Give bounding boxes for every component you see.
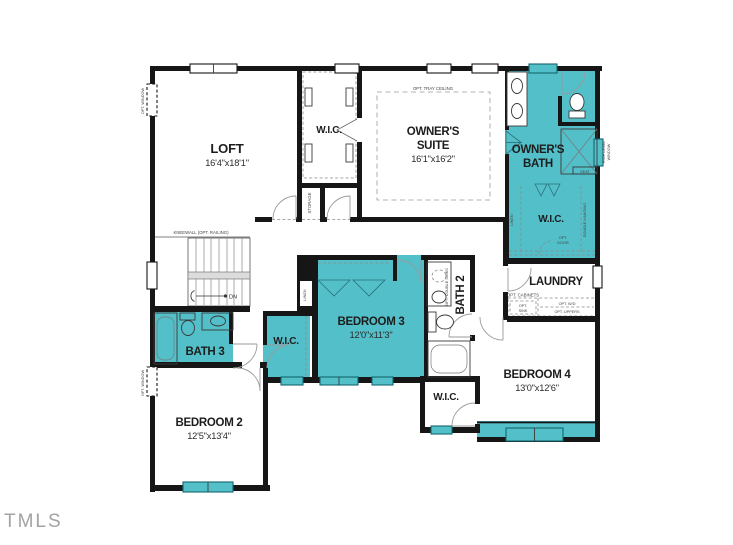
wall-bath2-right (470, 255, 475, 312)
seat-label: SEAT (580, 170, 590, 174)
bedroom3-dims: 12'0"x11'3" (350, 330, 393, 340)
wic-bed4-door (452, 403, 475, 426)
window (593, 266, 602, 288)
wall-water-closet-bottom (558, 122, 600, 126)
stair-landing (188, 272, 250, 279)
wic-hall-label: W.I.C. (316, 125, 342, 136)
wall-wic-hall-bottom (297, 183, 362, 188)
double-hanging-label: DOUBLE HANGING (583, 203, 587, 237)
wall-wic-suite-lower (357, 142, 362, 222)
wall-hall-d (350, 217, 507, 222)
wic-bed3-label: W.I.C. (273, 336, 299, 347)
bedroom2-dims: 12'5"x13'4" (187, 431, 231, 441)
owners-suite-dims: 16'1"x16'2" (411, 154, 455, 164)
wall-water-closet (558, 96, 562, 126)
wall-bedroom4-bottom-inner (477, 422, 595, 424)
wall-bedroom2-door-stub (260, 362, 267, 368)
wall-storage-left (297, 188, 302, 222)
window (147, 262, 157, 289)
bedroom4-label: BEDROOM 4 (504, 369, 572, 381)
window-highlighted (281, 377, 303, 385)
opt-double-sinks-label: OPT. DOUBLE SINKS (445, 268, 449, 306)
opt-window-lower (147, 367, 157, 396)
linen-label: LINEN (510, 214, 514, 225)
wall-bath3-bottom (150, 362, 242, 368)
wic-bed4-label: W.I.C. (433, 392, 459, 403)
opt-sink-label-1: OPT. (519, 304, 527, 308)
bedroom4-door (480, 317, 503, 340)
wall-wic-bed3-top (263, 311, 313, 316)
wall-stairs-bottom (150, 306, 250, 312)
storage-label: STORAGE (307, 192, 312, 213)
owners-bath-label-1: OWNER'S (512, 144, 565, 156)
bath2-label: BATH 2 (455, 276, 467, 315)
wall-owners-bath-west-lower (505, 154, 509, 184)
wall-storage-right (320, 188, 325, 222)
wall-wic-bed3-west (263, 311, 267, 345)
opt-door-label-1: OPT. (559, 236, 567, 240)
wall-bath2-top (427, 255, 475, 260)
loft-label: LOFT (210, 141, 243, 156)
window (427, 64, 451, 73)
floor-plan-page: LOFT 16'4"x18'1" W.I.C. STORAGE OPT. TRA… (0, 0, 733, 545)
down-arrow-curve (191, 291, 195, 302)
wall-bedroom3-top (312, 255, 397, 260)
laundry-label: LAUNDRY (529, 276, 583, 288)
watermark: TMLS (4, 511, 63, 532)
owners-suite-label-2: SUITE (417, 140, 450, 152)
bedroom3-label: BEDROOM 3 (338, 316, 405, 328)
wall-bedroom3-top-stub (421, 255, 427, 260)
wall-wic-suite-upper (357, 66, 362, 118)
wall-bedroom3-west (312, 255, 318, 377)
toilet-icon (569, 94, 585, 119)
wall-laundry-top (505, 258, 600, 264)
owners-bath-vanity-icon (507, 72, 527, 126)
opt-wd-label: OPT. W/D (559, 302, 576, 306)
laundry-door (508, 268, 531, 291)
bedroom2-label: BEDROOM 2 (176, 417, 243, 429)
bathtub-icon (428, 341, 470, 377)
owners-suite-label-1: OWNER'S (407, 126, 460, 138)
bedroom2-door (237, 368, 260, 391)
wall-bedroom2-right (263, 368, 268, 489)
tray-ceiling-label: OPT. TRAY CEILING (413, 86, 454, 91)
window (335, 64, 359, 73)
kneewall-label: KNEEWALL (OPT. RAILING) (173, 230, 229, 235)
opt-door-label-2: DOOR (557, 241, 569, 245)
wall-hall-c (322, 217, 327, 222)
bedroom4-dims: 13'0"x12'6" (515, 383, 559, 393)
loft-dims: 16'4"x18'1" (205, 158, 249, 168)
opt-sink-label-2: SINK (519, 309, 528, 313)
wall-bedroom4-left-stub (475, 424, 480, 430)
down-arrow-dot (224, 294, 227, 297)
opt-uppers-label: OPT. UPPERS (554, 310, 580, 314)
linen-hall-label: LINEN (303, 289, 307, 300)
floor-plan-drawing: LOFT 16'4"x18'1" W.I.C. STORAGE OPT. TRA… (0, 0, 733, 545)
wall-step (420, 377, 425, 433)
window-highlighted (372, 377, 393, 385)
owners-suite-door (327, 196, 350, 219)
wall-bath3-right (229, 312, 233, 344)
toilet-icon (428, 312, 454, 332)
wall-hall-a (255, 217, 272, 222)
owners-bath-label-2: BATH (523, 158, 553, 170)
bath3-label: BATH 3 (186, 346, 225, 358)
wall-loft-wic (297, 66, 302, 188)
owners-wic-label: W.I.C. (538, 214, 564, 225)
high-level-window-label-1: HIGH LEVEL (602, 141, 606, 163)
wall-laundry-bottom (507, 316, 600, 322)
window (472, 64, 498, 73)
loft-door (273, 196, 296, 219)
window-highlighted (529, 64, 557, 73)
wall-bath2-right-stub (470, 335, 475, 341)
stair-treads-lower (196, 279, 242, 305)
high-level-window-label-2: WINDOW (607, 143, 611, 160)
opt-window-label-lower: OPT. WINDOW (141, 370, 145, 397)
opt-window-label-upper: OPT. WINDOW (141, 88, 145, 115)
down-label: DN (229, 295, 237, 301)
opt-cabinets-label: OPT. CABINETS (507, 293, 539, 298)
bath3-fill (150, 306, 233, 368)
opt-window-upper (147, 84, 157, 116)
wall-hall-b (296, 217, 300, 222)
stair-treads-upper (196, 238, 242, 272)
window-highlighted (431, 426, 452, 434)
